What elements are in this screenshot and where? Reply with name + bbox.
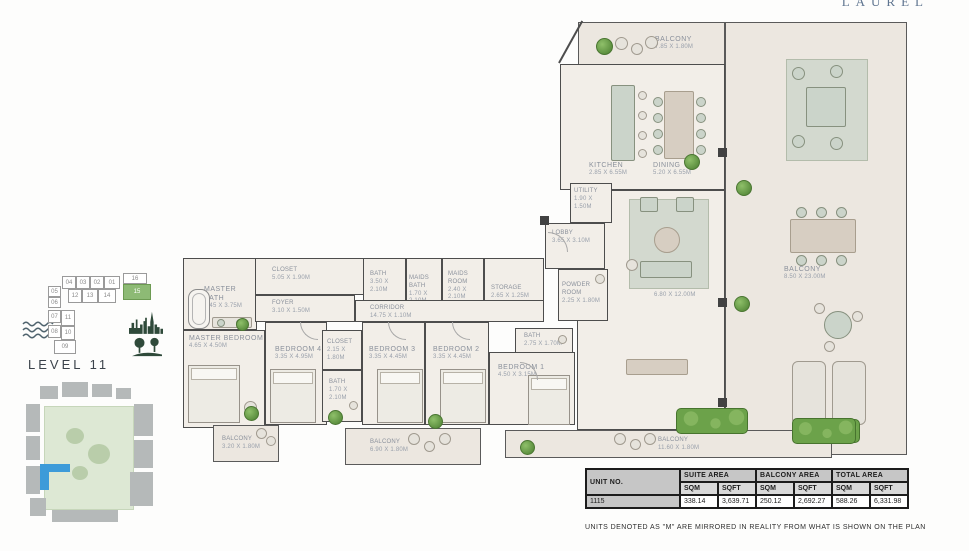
balcony-chair [266, 436, 276, 446]
sink [558, 335, 567, 344]
kitchen-stool [638, 149, 647, 158]
plant [236, 318, 249, 331]
site-building [26, 466, 40, 494]
dining-chair [696, 145, 706, 155]
sink [595, 274, 605, 284]
sofa [640, 261, 692, 278]
cell-total-sqm: 588.26 [832, 495, 870, 508]
dining-chair [696, 113, 706, 123]
keyplan-unit-05: 05 [48, 286, 61, 297]
site-building [134, 404, 153, 436]
room-corridor: CORRIDOR14.75 X 1.10M [355, 300, 544, 322]
site-tree [72, 466, 88, 480]
room-bedroom3: BEDROOM 33.35 X 4.45M [362, 322, 425, 425]
site-plan [22, 378, 157, 528]
plant [328, 410, 343, 425]
keyplan-unit-02: 02 [90, 276, 104, 289]
subheader-sqm: SQM [680, 482, 718, 495]
dining-table [664, 91, 694, 159]
outdoor-chair [792, 67, 805, 80]
column [718, 298, 727, 307]
column [540, 216, 549, 225]
room-balcony-bedrooms: BALCONY6.90 X 1.80M [345, 428, 481, 465]
cell-balcony-sqft: 2,692.27 [794, 495, 832, 508]
balcony-chair [645, 36, 658, 49]
room-closet-bedroom4: CLOSET2.15 X 1.80M [322, 330, 362, 370]
armchair [640, 197, 658, 212]
balcony-chair [439, 433, 451, 445]
site-building [52, 510, 118, 522]
outdoor-chair [830, 65, 843, 78]
site-tree [88, 444, 110, 464]
key-plan: 04 03 02 01 16 15 12 13 14 05 06 07 11 0… [16, 270, 176, 362]
col-header-suite-area: SUITE AREA [680, 469, 756, 482]
mirror-note: UNITS DENOTED AS "M" ARE MIRRORED IN REA… [585, 524, 926, 531]
room-maids-room: MAIDS ROOM2.40 X 2.10M [442, 258, 484, 306]
site-building [134, 440, 153, 468]
room-powder: POWDER ROOM2.25 X 1.80M [558, 269, 608, 321]
balcony-chair [631, 43, 643, 55]
side-table [626, 259, 638, 271]
room-bath-shared: BATH3.50 X 2.10M [363, 258, 406, 302]
outdoor-chair [824, 341, 835, 352]
dining-chair [696, 129, 706, 139]
site-building [116, 388, 131, 399]
hedge-planter [676, 408, 748, 434]
outdoor-chair [796, 255, 807, 266]
room-kitchen-dining: KITCHEN2.85 X 6.55M DINING5.20 X 6.55M [560, 64, 725, 190]
bed [188, 365, 240, 423]
balcony-chair [615, 37, 628, 50]
kitchen-island [611, 85, 635, 161]
keyplan-unit-08: 08 [48, 325, 61, 338]
brand-logo: LAUREL [842, 0, 929, 10]
bathtub [188, 289, 210, 329]
balcony-chair [256, 428, 267, 439]
room-storage: STORAGE2.65 X 1.25M [484, 258, 544, 304]
plant [734, 296, 750, 312]
bed [440, 369, 486, 423]
keyplan-unit-09: 09 [54, 340, 76, 354]
outdoor-chair [814, 303, 825, 314]
console-table [626, 359, 688, 375]
outdoor-chair [792, 135, 805, 148]
keyplan-unit-07: 07 [48, 310, 61, 323]
outdoor-chair [852, 311, 863, 322]
outdoor-chair [836, 255, 847, 266]
bed [270, 369, 316, 423]
room-balcony-bottom-right: BALCONY11.60 X 1.80M [505, 430, 832, 458]
site-building [130, 472, 153, 506]
col-header-balcony-area: BALCONY AREA [756, 469, 832, 482]
subheader-sqft: SQFT [794, 482, 832, 495]
city-skyline-icon [129, 310, 163, 339]
kitchen-stool [638, 131, 647, 140]
outdoor-chair [816, 207, 827, 218]
keyplan-unit-04: 04 [62, 276, 76, 289]
site-building [92, 384, 112, 397]
keyplan-unit-14: 14 [98, 289, 116, 303]
plant [596, 38, 613, 55]
balcony-chair [644, 433, 656, 445]
site-building [62, 382, 88, 397]
keyplan-unit-12: 12 [68, 289, 82, 303]
dining-chair [653, 97, 663, 107]
site-building [40, 386, 58, 399]
outdoor-chair [816, 255, 827, 266]
sink [217, 319, 225, 327]
plant [520, 440, 535, 455]
keyplan-unit-03: 03 [76, 276, 90, 289]
keyplan-unit-10: 10 [61, 326, 75, 340]
kitchen-stool [638, 111, 647, 120]
bed [528, 375, 570, 425]
room-bedroom2: BEDROOM 23.35 X 4.45M [425, 322, 489, 425]
site-highlight-building [40, 464, 49, 490]
subheader-sqft: SQFT [870, 482, 908, 495]
keyplan-unit-06: 06 [48, 297, 61, 308]
keyplan-unit-15-highlighted: 15 [123, 284, 151, 300]
col-header-unit-no: UNIT NO. [586, 469, 680, 495]
keyplan-unit-11: 11 [61, 310, 75, 326]
balcony-chair [408, 433, 420, 445]
subheader-sqm: SQM [756, 482, 794, 495]
outdoor-chair [830, 137, 843, 150]
column [718, 148, 727, 157]
armchair [676, 197, 694, 212]
subheader-sqm: SQM [832, 482, 870, 495]
lattice-lounger [792, 361, 826, 425]
outdoor-lounge-table [806, 87, 846, 127]
outdoor-chair [836, 207, 847, 218]
dining-chair [653, 145, 663, 155]
site-building [26, 404, 40, 432]
plant [428, 414, 443, 429]
column [718, 398, 727, 407]
site-building [26, 436, 40, 460]
area-table: UNIT NO. SUITE AREA BALCONY AREA TOTAL A… [585, 468, 909, 509]
outdoor-chair [796, 207, 807, 218]
dining-chair [653, 113, 663, 123]
dining-chair [653, 129, 663, 139]
plant [244, 406, 259, 421]
keyplan-unit-01: 01 [104, 276, 120, 289]
room-balcony-right: BALCONY8.50 X 23.00M [725, 22, 907, 455]
kitchen-stool [638, 91, 647, 100]
bed [377, 369, 423, 423]
keyplan-unit-13: 13 [82, 289, 98, 303]
room-bedroom1: BEDROOM 14.50 X 3.15M [489, 352, 575, 425]
subheader-sqft: SQFT [718, 482, 756, 495]
room-closet-master: CLOSET5.05 X 1.90M [255, 258, 379, 295]
site-tree [66, 428, 84, 444]
cell-suite-sqm: 338.14 [680, 495, 718, 508]
cell-suite-sqft: 3,639.71 [718, 495, 756, 508]
col-header-total-area: TOTAL AREA [832, 469, 908, 482]
balcony-chair [614, 433, 626, 445]
room-utility: UTILITY1.90 X 1.50M [570, 183, 612, 223]
keyplan-unit-16: 16 [123, 273, 147, 284]
plant [736, 180, 752, 196]
site-building [30, 498, 46, 516]
room-balcony-master: BALCONY3.20 X 1.80M [213, 425, 279, 462]
floorplan-page: LAUREL BALCONY7.85 X 1.80M BALCONY8.50 X… [0, 0, 969, 551]
hedge-planter [792, 418, 856, 444]
balcony-chair [424, 441, 435, 452]
dining-chair [696, 97, 706, 107]
plant [684, 154, 700, 170]
room-maids-bath: MAIDS BATH1.70 X 2.10M [406, 258, 442, 306]
lattice-lounger [832, 361, 866, 425]
cell-unit-no: 1115 [586, 495, 680, 508]
cell-total-sqft: 6,331.98 [870, 495, 908, 508]
outdoor-dining-table [790, 219, 856, 253]
coffee-table [654, 227, 680, 253]
level-label: LEVEL 11 [28, 357, 109, 372]
balcony-chair [630, 439, 641, 450]
outdoor-round-table [824, 311, 852, 339]
room-foyer: FOYER3.10 X 1.50M [255, 295, 355, 322]
cell-balcony-sqm: 250.12 [756, 495, 794, 508]
park-trees-icon [132, 336, 162, 363]
toilet [349, 401, 358, 410]
